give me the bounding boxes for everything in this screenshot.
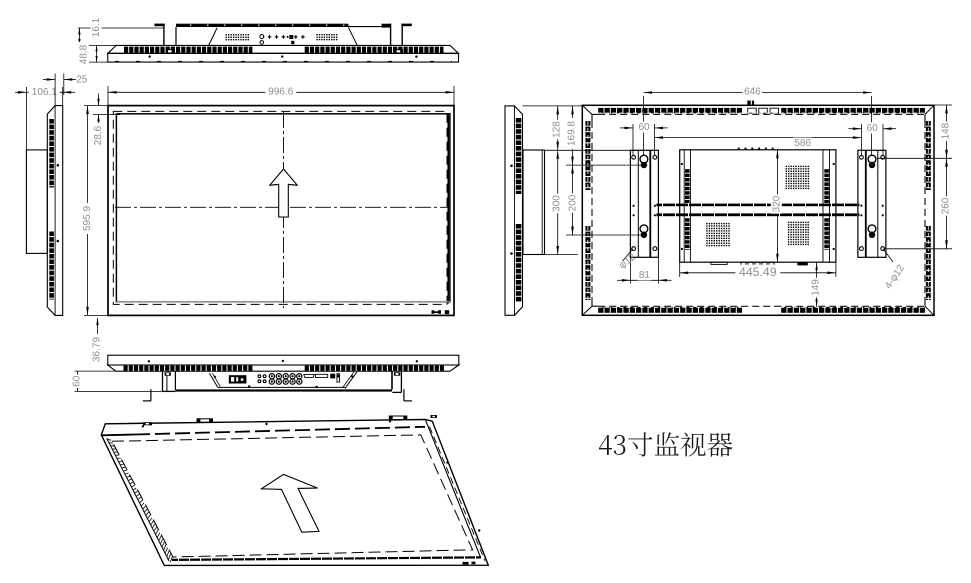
svg-text:25: 25 bbox=[76, 75, 88, 86]
svg-text:81: 81 bbox=[639, 270, 651, 281]
svg-text:148: 148 bbox=[941, 122, 952, 139]
svg-text:48.8: 48.8 bbox=[79, 44, 90, 64]
svg-text:320: 320 bbox=[771, 195, 782, 212]
svg-text:996.6: 996.6 bbox=[268, 87, 293, 98]
svg-text:28.6: 28.6 bbox=[93, 125, 104, 145]
svg-text:149: 149 bbox=[810, 279, 821, 296]
svg-text:595.9: 595.9 bbox=[82, 206, 93, 231]
svg-text:128: 128 bbox=[552, 121, 563, 138]
svg-text:36.79: 36.79 bbox=[92, 337, 103, 362]
svg-text:200: 200 bbox=[568, 194, 579, 211]
svg-text:646: 646 bbox=[744, 87, 761, 98]
svg-text:300: 300 bbox=[552, 195, 563, 212]
svg-text:60: 60 bbox=[72, 375, 83, 387]
svg-text:445.49: 445.49 bbox=[739, 265, 777, 279]
svg-text:16.1: 16.1 bbox=[91, 17, 102, 37]
svg-text:586: 586 bbox=[794, 138, 811, 149]
svg-text:106.1: 106.1 bbox=[32, 87, 57, 98]
svg-text:260: 260 bbox=[941, 197, 952, 214]
svg-text:169.8: 169.8 bbox=[567, 121, 578, 146]
svg-text:60: 60 bbox=[638, 122, 650, 133]
svg-text:60: 60 bbox=[867, 123, 879, 134]
